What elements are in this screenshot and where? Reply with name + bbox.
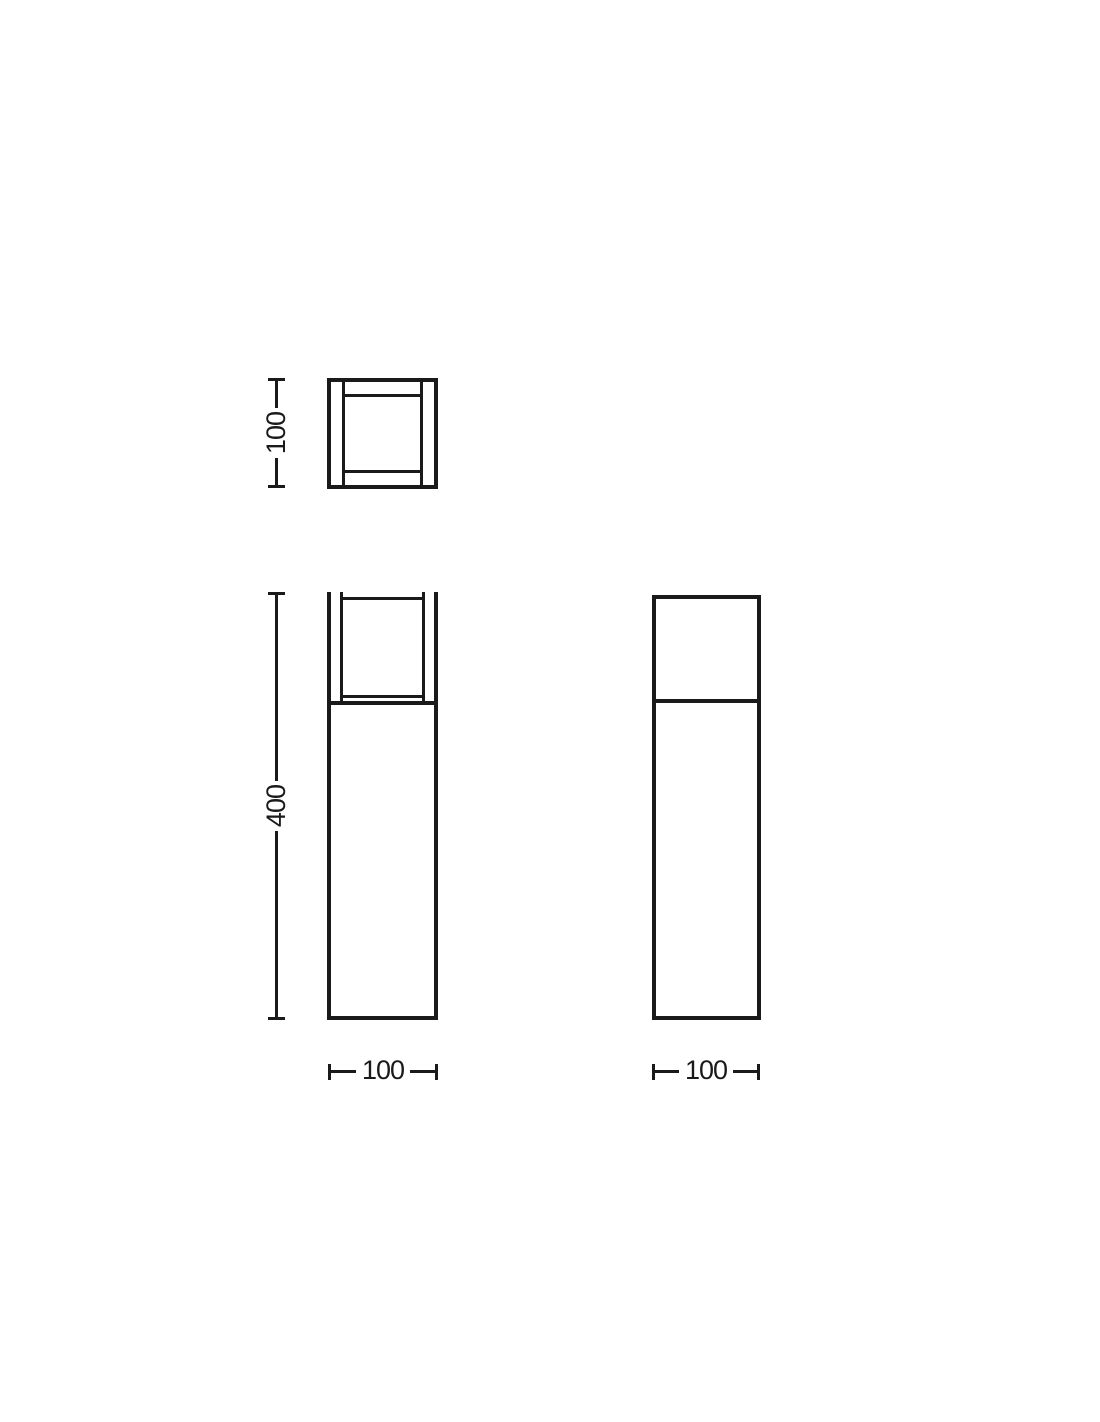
front-head-left-post-inner-line: [340, 592, 343, 705]
dim-line: [275, 831, 278, 1017]
side-view-section-line: [656, 699, 757, 703]
front-head-left-post-outer-line: [327, 592, 331, 705]
front-view-width-dimension: 100: [328, 1063, 438, 1080]
dim-label: 100: [685, 1057, 727, 1084]
dim-tick: [268, 1017, 285, 1020]
front-head-right-post-inner-line: [422, 592, 425, 705]
dim-line: [410, 1070, 435, 1073]
front-view-height-dimension: 400: [268, 592, 285, 1020]
dim-tick: [757, 1064, 760, 1080]
front-view-head: [327, 592, 438, 705]
side-view: [652, 595, 761, 1020]
front-view-body: [327, 705, 438, 1020]
top-view: [327, 378, 438, 489]
side-view-width-dimension: 100: [652, 1063, 760, 1080]
dim-tick: [268, 485, 285, 488]
front-head-top-plate-line: [343, 597, 422, 600]
dimension-drawing: 100 400 100 100: [0, 0, 1100, 1422]
dim-line: [275, 595, 278, 781]
front-head-right-post-outer-line: [434, 592, 438, 705]
dim-line: [655, 1070, 679, 1073]
dim-line: [733, 1070, 757, 1073]
top-view-right-bar-line: [420, 382, 423, 485]
top-view-top-rim-line: [345, 394, 420, 397]
front-head-window-bottom-line: [343, 695, 422, 698]
dim-label: 400: [263, 785, 290, 827]
dim-tick: [435, 1064, 438, 1080]
top-view-height-dimension: 100: [268, 378, 285, 488]
top-view-bottom-rim-line: [345, 470, 420, 473]
dim-label: 100: [362, 1057, 404, 1084]
dim-line: [275, 458, 278, 485]
dim-label: 100: [263, 412, 290, 454]
dim-line: [331, 1070, 356, 1073]
dim-line: [275, 381, 278, 408]
